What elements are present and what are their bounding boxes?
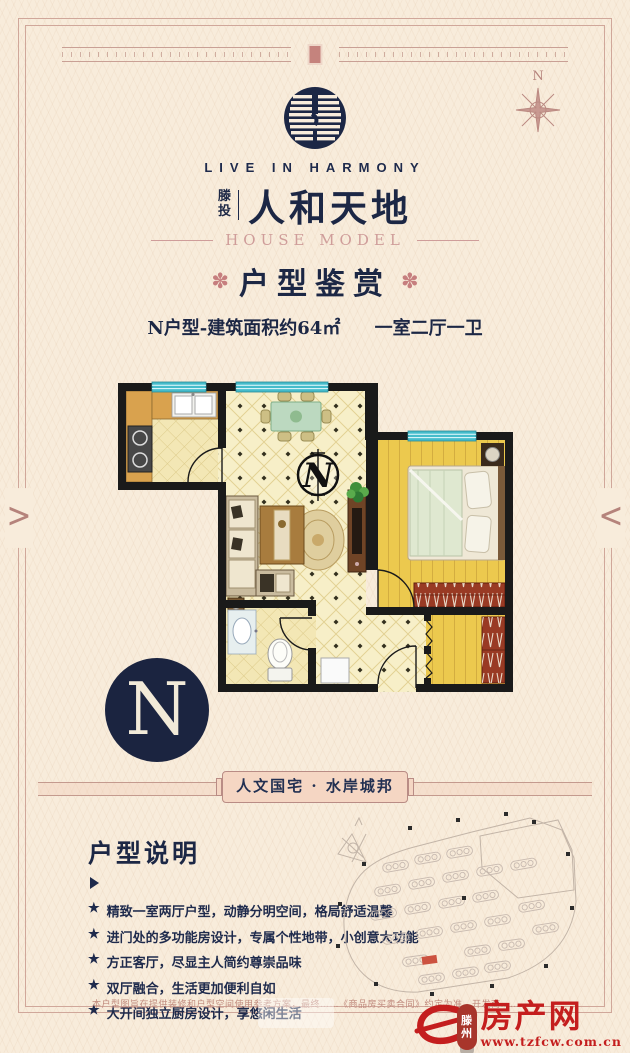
flower-ornament-icon: ✽ [401, 269, 419, 293]
bullet-text: 双厅融合，生活更加便利自如 [107, 978, 276, 997]
banner-rail [402, 782, 592, 796]
divider [417, 240, 479, 241]
bullet-text: 方正客厅，尽显主人简约尊崇品味 [107, 952, 302, 971]
logo-slogan: LIVE IN HARMONY [0, 160, 630, 175]
closet-wardrobe [482, 617, 505, 683]
star-icon: ★ [88, 901, 100, 920]
star-icon: ★ [88, 978, 100, 997]
logo-url: www.tzfcw.com.cn [481, 1034, 622, 1049]
unit-letter-badge: N [105, 658, 209, 762]
band-segment [339, 47, 568, 62]
city-badge: 滕 州 [457, 1004, 477, 1050]
chevron-left-icon: < [597, 488, 625, 548]
brand-prefix-top: 滕 [218, 190, 231, 205]
star-icon: ★ [88, 927, 100, 946]
unit-info: N户型-建筑面积约64㎡ 一室二厅一卫 [0, 314, 630, 340]
watermark-blob [258, 998, 334, 1028]
unit-spec: N户型-建筑面积约64㎡ [147, 318, 340, 339]
logo-name: 房产网 [481, 1000, 583, 1034]
compass-label: N [532, 69, 543, 84]
map-markers [336, 812, 574, 996]
plan-compass-icon: N [298, 449, 338, 501]
page-title: 户型鉴赏 [239, 259, 391, 303]
brand-row: 滕 投 人和天地 [0, 178, 630, 232]
divider [151, 240, 213, 241]
band-ornament [308, 44, 323, 65]
floorplan-diagram: N [108, 370, 520, 700]
site-masterplan-sketch [322, 806, 590, 1004]
compass-rose-icon: N [506, 64, 570, 144]
plan-compass-letter: N [301, 456, 335, 496]
top-decorative-band [62, 47, 568, 62]
badge-char: 滕 [461, 1014, 472, 1027]
banner-ribbon: 人文国宅 · 水岸城邦 [222, 771, 408, 803]
brand-subtitle-row: HOUSE MODEL [0, 231, 630, 249]
poster: > < N LIVE [0, 0, 630, 1053]
unit-rooms: 一室二厅一卫 [375, 318, 483, 339]
arrow-right-icon [90, 877, 99, 889]
chevron-right-icon: > [5, 488, 33, 548]
brand-prefix-bottom: 投 [218, 205, 231, 220]
badge-char: 州 [461, 1027, 472, 1040]
highlighted-building [422, 955, 438, 965]
band-segment [62, 47, 291, 62]
brand-logo-icon [283, 86, 347, 150]
section-title-row: ✽ 户型鉴赏 ✽ [0, 259, 630, 303]
banner-rail [38, 782, 228, 796]
brand-prefix: 滕 投 [218, 190, 239, 220]
brand-subtitle: HOUSE MODEL [225, 231, 405, 249]
site-logo: 滕 州 房产网 www.tzfcw.com.cn [413, 1000, 622, 1050]
flower-ornament-icon: ✽ [211, 269, 229, 293]
brand-name: 人和天地 [248, 178, 412, 232]
star-icon: ★ [88, 952, 100, 971]
